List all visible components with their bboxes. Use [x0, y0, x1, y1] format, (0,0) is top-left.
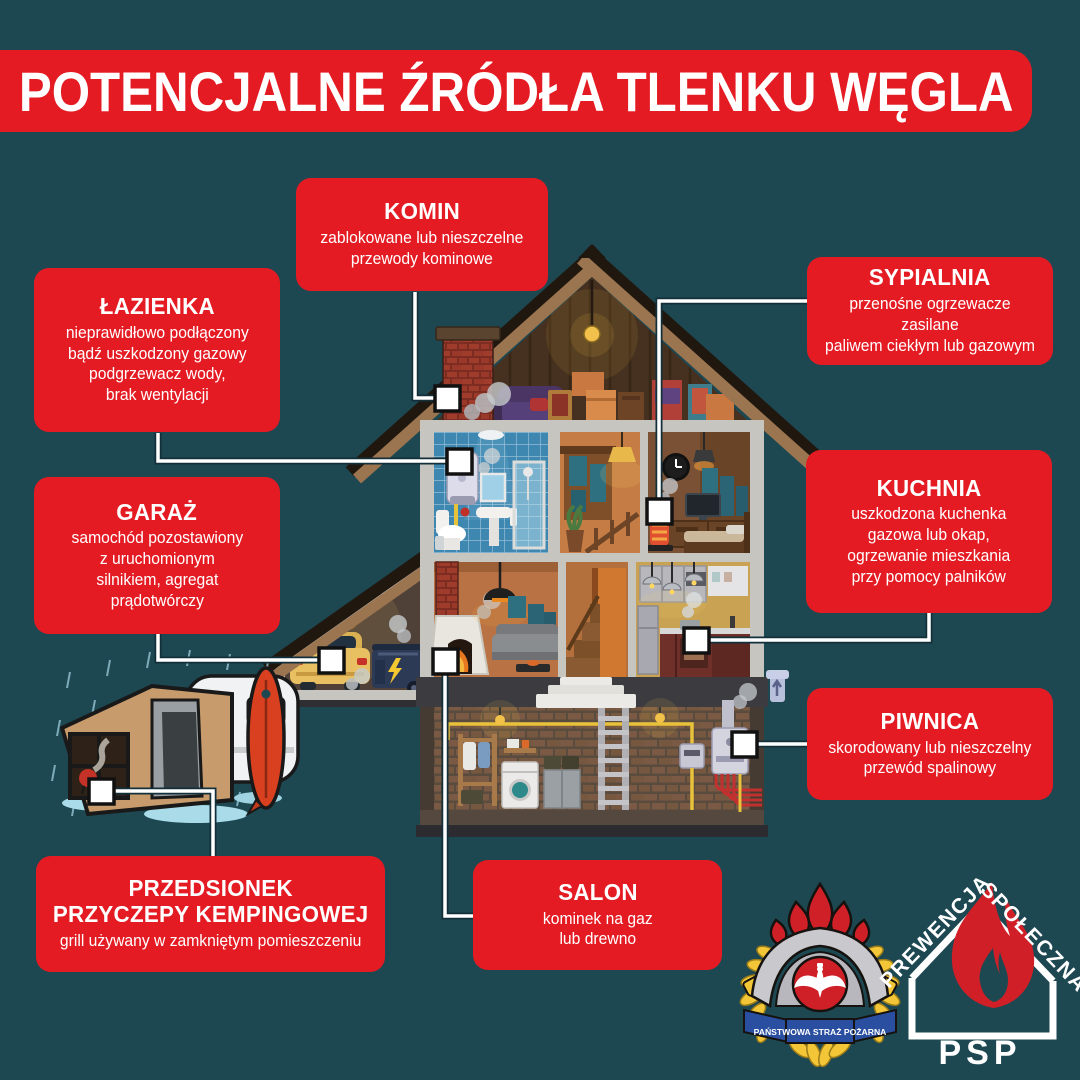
page-title: POTENCJALNE ŹRÓDŁA TLENKU WĘGLA: [19, 59, 1014, 124]
callout-garaz-body: samochód pozostawiony z uruchomionym sil…: [71, 528, 243, 611]
marker-lazienka: [447, 449, 472, 474]
callout-przedsionek: PRZEDSIONEK PRZYCZEPY KEMPINGOWEJ grill …: [36, 856, 385, 972]
upstairs-hall: [560, 432, 644, 553]
surfboard: [248, 668, 284, 814]
washing-machine: [502, 762, 538, 808]
exterior-vent-pipe: [766, 670, 789, 702]
callout-przedsionek-body: grill używany w zamkniętym pomieszczeniu: [60, 931, 361, 952]
marker-przedsionek: [89, 779, 114, 804]
callout-salon: SALON kominek na gaz lub drewno: [473, 860, 722, 970]
callout-sypialnia-body: przenośne ogrzewacze zasilane paliwem ci…: [821, 294, 1040, 356]
callout-komin-heading: KOMIN: [384, 199, 460, 225]
marker-garaz: [319, 648, 344, 673]
callout-salon-heading: SALON: [558, 880, 638, 906]
callout-komin: KOMIN zablokowane lub nieszczelne przewo…: [296, 178, 548, 291]
callout-lazienka-heading: ŁAZIENKA: [99, 294, 214, 320]
kitchen: [636, 562, 750, 677]
callout-kuchnia-heading: KUCHNIA: [877, 476, 982, 502]
second-floor: [434, 430, 750, 553]
psp-abbr-text: PSP: [938, 1034, 1021, 1072]
marker-piwnica: [732, 732, 757, 757]
callout-salon-body: kominek na gaz lub drewno: [543, 909, 653, 951]
house: [350, 244, 834, 837]
callout-lazienka: ŁAZIENKA nieprawidłowo podłączony bądź u…: [34, 268, 280, 432]
connector-lazienka: [158, 433, 459, 461]
callout-garaz-heading: GARAŻ: [117, 500, 198, 526]
callout-lazienka-body: nieprawidłowo podłączony bądź uszkodzony…: [66, 323, 249, 406]
callout-piwnica-heading: PIWNICA: [881, 709, 980, 735]
callout-kuchnia-body: uszkodzona kuchenka gazowa lub okap, ogr…: [848, 504, 1011, 587]
callout-piwnica: PIWNICA skorodowany lub nieszczelny prze…: [807, 688, 1053, 800]
callout-sypialnia: SYPIALNIA przenośne ogrzewacze zasilane …: [807, 257, 1053, 365]
title-bar: POTENCJALNE ŹRÓDŁA TLENKU WĘGLA: [0, 50, 1032, 132]
marker-kuchnia: [684, 628, 709, 653]
badge-ribbon: PAŃSTWOWA STRAŻ POŻARNA: [744, 1010, 896, 1043]
callout-komin-body: zablokowane lub nieszczelne przewody kom…: [320, 228, 523, 270]
marker-komin: [435, 386, 460, 411]
badge-banner-text: PAŃSTWOWA STRAŻ POŻARNA: [754, 1027, 887, 1037]
callout-piwnica-body: skorodowany lub nieszczelny przewód spal…: [828, 738, 1031, 780]
callout-garaz: GARAŻ samochód pozostawiony z uruchomion…: [34, 477, 280, 634]
garage: [266, 540, 440, 707]
callout-przedsionek-heading: PRZEDSIONEK PRZYCZEPY KEMPINGOWEJ: [53, 876, 369, 928]
callout-kuchnia: KUCHNIA uszkodzona kuchenka gazowa lub o…: [806, 450, 1052, 613]
ground-floor: [430, 562, 750, 677]
infographic-poster: PAŃSTWOWA STRAŻ POŻARNA PREWENCJA SPOŁEC…: [0, 0, 1080, 1080]
callout-sypialnia-heading: SYPIALNIA: [869, 265, 991, 291]
marker-salon: [433, 649, 458, 674]
marker-sypialnia: [647, 499, 672, 524]
stairwell: [566, 562, 628, 677]
prewencja-logo: PREWENCJA SPOŁECZNA PSP: [876, 870, 1080, 1072]
